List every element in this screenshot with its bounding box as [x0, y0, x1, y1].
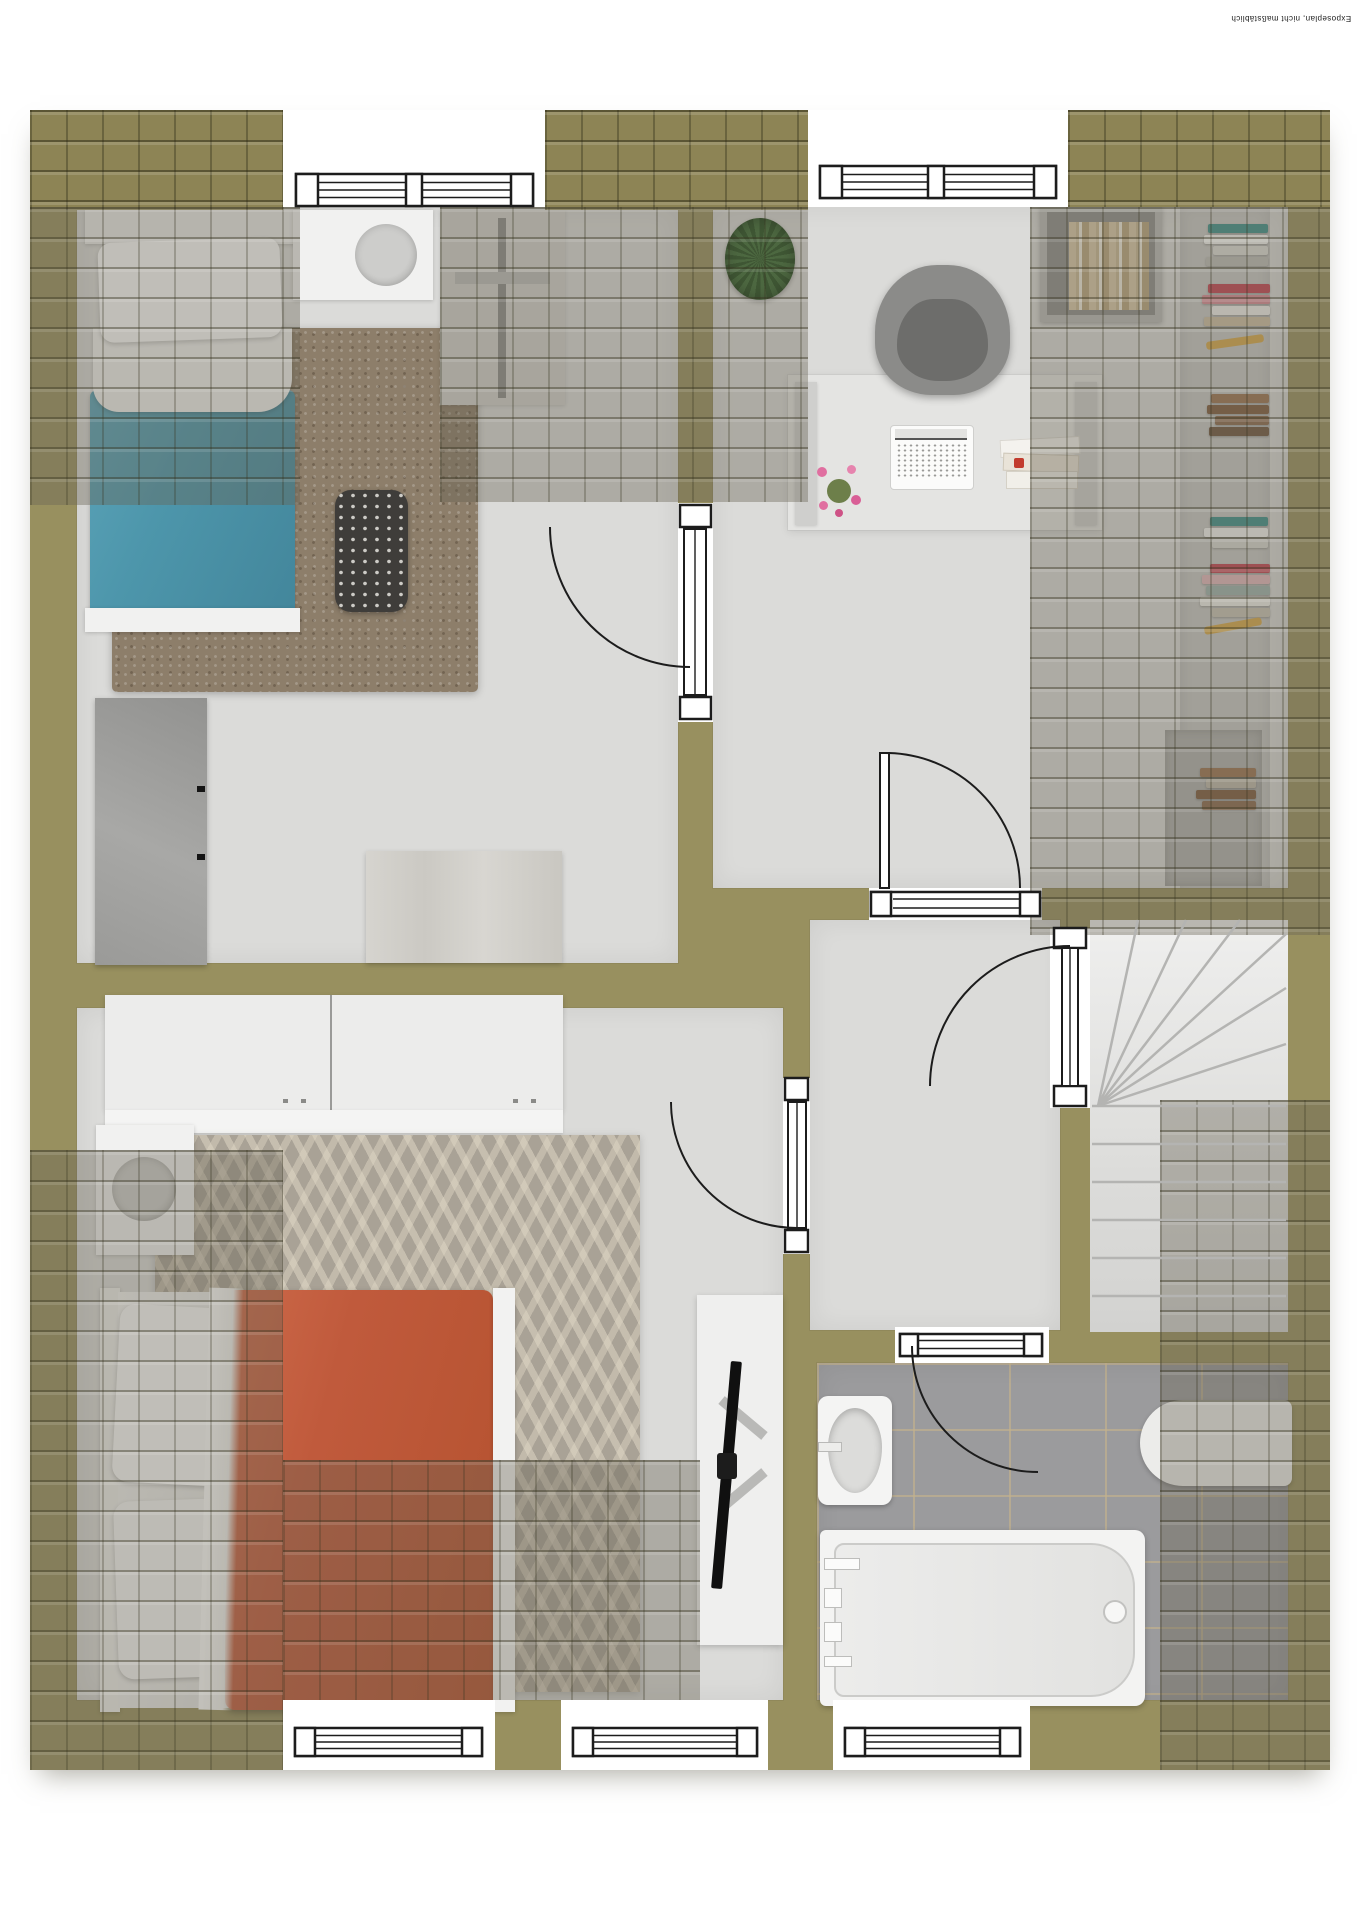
- window-opening: [833, 1700, 1030, 1770]
- basin-tap: [818, 1442, 842, 1452]
- window-opening: [283, 1700, 495, 1770]
- tub-drain: [1103, 1600, 1127, 1624]
- nightstand: [293, 210, 433, 300]
- flower: [847, 465, 856, 474]
- door-opening: [895, 1327, 1049, 1363]
- door-opening: [1050, 928, 1090, 1108]
- dresser-handle: [197, 854, 205, 860]
- chair-seat: [897, 299, 988, 381]
- window-opening: [808, 110, 1068, 207]
- tv-board: [697, 1295, 783, 1645]
- flower: [835, 509, 843, 517]
- dresser-handle: [197, 786, 205, 792]
- flower-vase: [815, 465, 862, 520]
- tub-control: [824, 1622, 842, 1642]
- wardrobe-door-gap: [330, 995, 332, 1110]
- wardrobe-handle: [301, 1099, 306, 1103]
- roof-tiles: [1068, 110, 1330, 207]
- wood-sideboard: [366, 851, 562, 963]
- door-opening: [678, 503, 713, 722]
- floor-plan-page: { "watermark": { "text": "Exposeplan, ni…: [0, 0, 1357, 1920]
- laptop-keyboard: [896, 443, 967, 479]
- flower: [817, 467, 827, 477]
- flower: [851, 495, 861, 505]
- wardrobe-handle: [283, 1099, 288, 1103]
- office-chair: [875, 265, 1010, 395]
- lamp: [355, 224, 417, 286]
- wardrobe: [105, 995, 563, 1110]
- bathtub: [820, 1530, 1145, 1706]
- wardrobe-handle: [531, 1099, 536, 1103]
- roof-slope-overlay: [283, 1460, 700, 1700]
- roof-slope-overlay: [440, 207, 808, 502]
- gray-dresser: [95, 698, 207, 965]
- flower: [819, 501, 828, 510]
- flower-greens: [827, 479, 851, 503]
- tub-handle: [824, 1656, 852, 1667]
- watermark-text: Exposeplan, nicht maßstäblich: [1231, 14, 1351, 23]
- roof-tiles: [545, 110, 808, 210]
- roof-slope-overlay: [30, 1150, 283, 1770]
- door-opening: [783, 1078, 810, 1254]
- roof-slope-overlay: [1160, 1100, 1330, 1770]
- wardrobe-handle: [513, 1099, 518, 1103]
- room-hallway: [810, 920, 1060, 1330]
- washbasin: [818, 1396, 892, 1505]
- floor-plan: [30, 110, 1330, 1770]
- laptop: [890, 425, 974, 490]
- patterned-armchair: [335, 490, 408, 612]
- roof-slope-overlay: [1030, 207, 1330, 935]
- tub-faucet: [824, 1558, 860, 1570]
- window-opening: [283, 110, 545, 207]
- tub-control: [824, 1588, 842, 1608]
- bed-footboard: [85, 608, 300, 632]
- roof-tiles: [30, 110, 283, 210]
- door-opening: [869, 888, 1042, 920]
- book-accent-red: [1014, 458, 1024, 468]
- roof-slope-overlay: [30, 207, 300, 505]
- window-opening: [561, 1700, 768, 1770]
- tv-mount: [717, 1453, 737, 1479]
- tub-interior: [834, 1543, 1135, 1697]
- laptop-screen-edge: [895, 429, 967, 440]
